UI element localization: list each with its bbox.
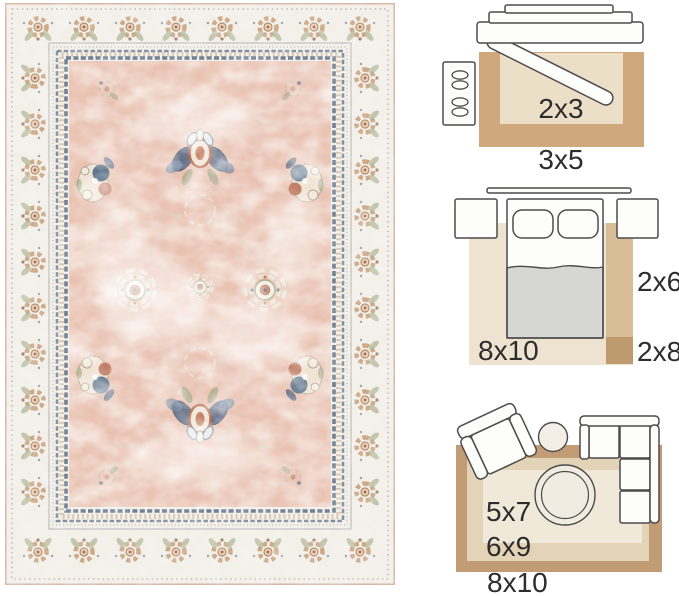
label-2x8: 2x8	[637, 336, 679, 367]
label-5x7: 5x7	[486, 496, 531, 527]
runner-size-2x6	[606, 223, 633, 337]
console-table-icon	[477, 5, 643, 43]
product-image: 2x3 3x5 8x1	[0, 0, 679, 596]
pillow-icon	[513, 210, 553, 238]
headboard-icon	[487, 188, 631, 193]
rug-image	[5, 3, 395, 585]
pillow-icon	[558, 210, 598, 238]
size-diagram-living-room: 5x7 6x9 8x10	[430, 400, 679, 596]
runner-size-2x8	[606, 337, 633, 364]
rug-distress-overlay	[7, 5, 393, 583]
label-8x10-living: 8x10	[487, 567, 548, 596]
size-diagram-bedroom: 8x10 2x6 2x8	[430, 180, 679, 390]
coffee-table-icon	[535, 465, 595, 525]
size-diagram-entryway: 2x3 3x5	[430, 0, 679, 180]
label-2x6: 2x6	[637, 266, 679, 297]
bed-icon	[507, 199, 603, 338]
shoe-cabinet-icon	[443, 62, 475, 125]
label-2x3: 2x3	[538, 93, 583, 124]
nightstand-icon	[455, 199, 497, 238]
label-3x5: 3x5	[538, 144, 583, 175]
side-table-icon	[539, 423, 568, 452]
label-6x9: 6x9	[486, 531, 531, 562]
label-8x10-bedroom: 8x10	[478, 335, 539, 366]
nightstand-icon	[617, 199, 658, 238]
